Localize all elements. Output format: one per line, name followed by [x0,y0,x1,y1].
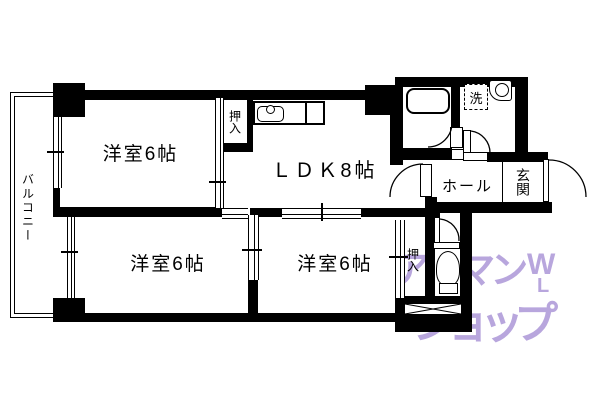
closet-top-label: 押入 [226,102,244,142]
ldk-label: ＬＤＫ8帖 [252,155,397,181]
room-top-left-label: 洋室6帖 [68,141,213,163]
entrance-label: 玄関 [513,162,533,202]
hall-label: ホール [440,176,495,194]
kitchen-faucet [266,105,275,114]
balcony-label: バルコニー [18,168,38,248]
room-bottom-left-label: 洋室6帖 [92,251,244,273]
closet-bottom-label: 押入 [404,240,422,280]
door-arcs [0,0,600,400]
laundry-label: 洗 [464,86,488,108]
floor-plan: アパマン W L ショップ [0,0,600,400]
room-bottom-center-label: 洋室6帖 [260,251,410,273]
